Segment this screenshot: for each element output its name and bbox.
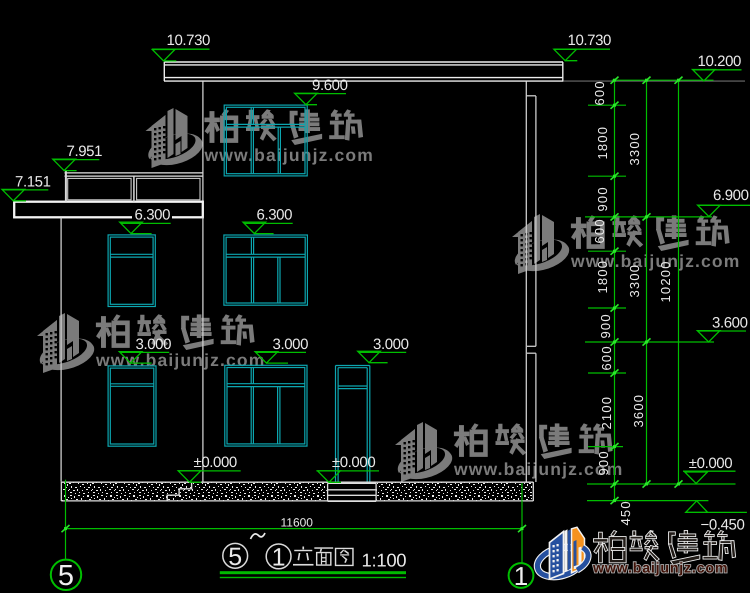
svg-text:1800: 1800 (595, 260, 610, 294)
svg-text:900: 900 (596, 450, 611, 475)
svg-text:±0.000: ±0.000 (689, 455, 732, 472)
svg-text:1: 1 (272, 544, 286, 572)
svg-text:900: 900 (595, 186, 610, 211)
svg-text:3.600: 3.600 (712, 314, 748, 331)
svg-text:6.300: 6.300 (257, 207, 293, 224)
svg-text:3600: 3600 (631, 394, 646, 428)
svg-text:5: 5 (228, 543, 242, 571)
svg-text:10.730: 10.730 (568, 32, 612, 49)
svg-text:3.000: 3.000 (273, 336, 309, 353)
svg-text:2100: 2100 (599, 396, 614, 430)
svg-text:www.baijunjz.com: www.baijunjz.com (592, 561, 728, 577)
svg-text:±0.000: ±0.000 (332, 454, 375, 471)
svg-text:5: 5 (58, 560, 74, 592)
svg-text:3300: 3300 (627, 132, 642, 166)
svg-text:450: 450 (618, 500, 633, 525)
svg-text:10200: 10200 (658, 260, 673, 302)
svg-text:10.200: 10.200 (698, 53, 742, 70)
svg-text:6.900: 6.900 (713, 187, 749, 204)
svg-text:1: 1 (514, 561, 528, 591)
svg-text:600: 600 (592, 80, 607, 105)
svg-text:1800: 1800 (595, 126, 610, 160)
svg-text:900: 900 (598, 313, 613, 338)
svg-text:9.600: 9.600 (312, 77, 348, 94)
svg-text:11600: 11600 (281, 516, 314, 530)
svg-text:10.730: 10.730 (167, 32, 211, 49)
svg-text:3.000: 3.000 (136, 336, 172, 353)
svg-text:6.300: 6.300 (135, 207, 171, 224)
svg-text:3.000: 3.000 (373, 336, 409, 353)
svg-text:7.951: 7.951 (67, 143, 103, 160)
svg-text:3300: 3300 (627, 264, 642, 298)
svg-text:±0.000: ±0.000 (194, 454, 237, 471)
svg-text:7.151: 7.151 (15, 173, 51, 190)
svg-text:600: 600 (592, 218, 607, 243)
svg-text:600: 600 (599, 345, 614, 370)
svg-text:1:100: 1:100 (362, 550, 407, 571)
